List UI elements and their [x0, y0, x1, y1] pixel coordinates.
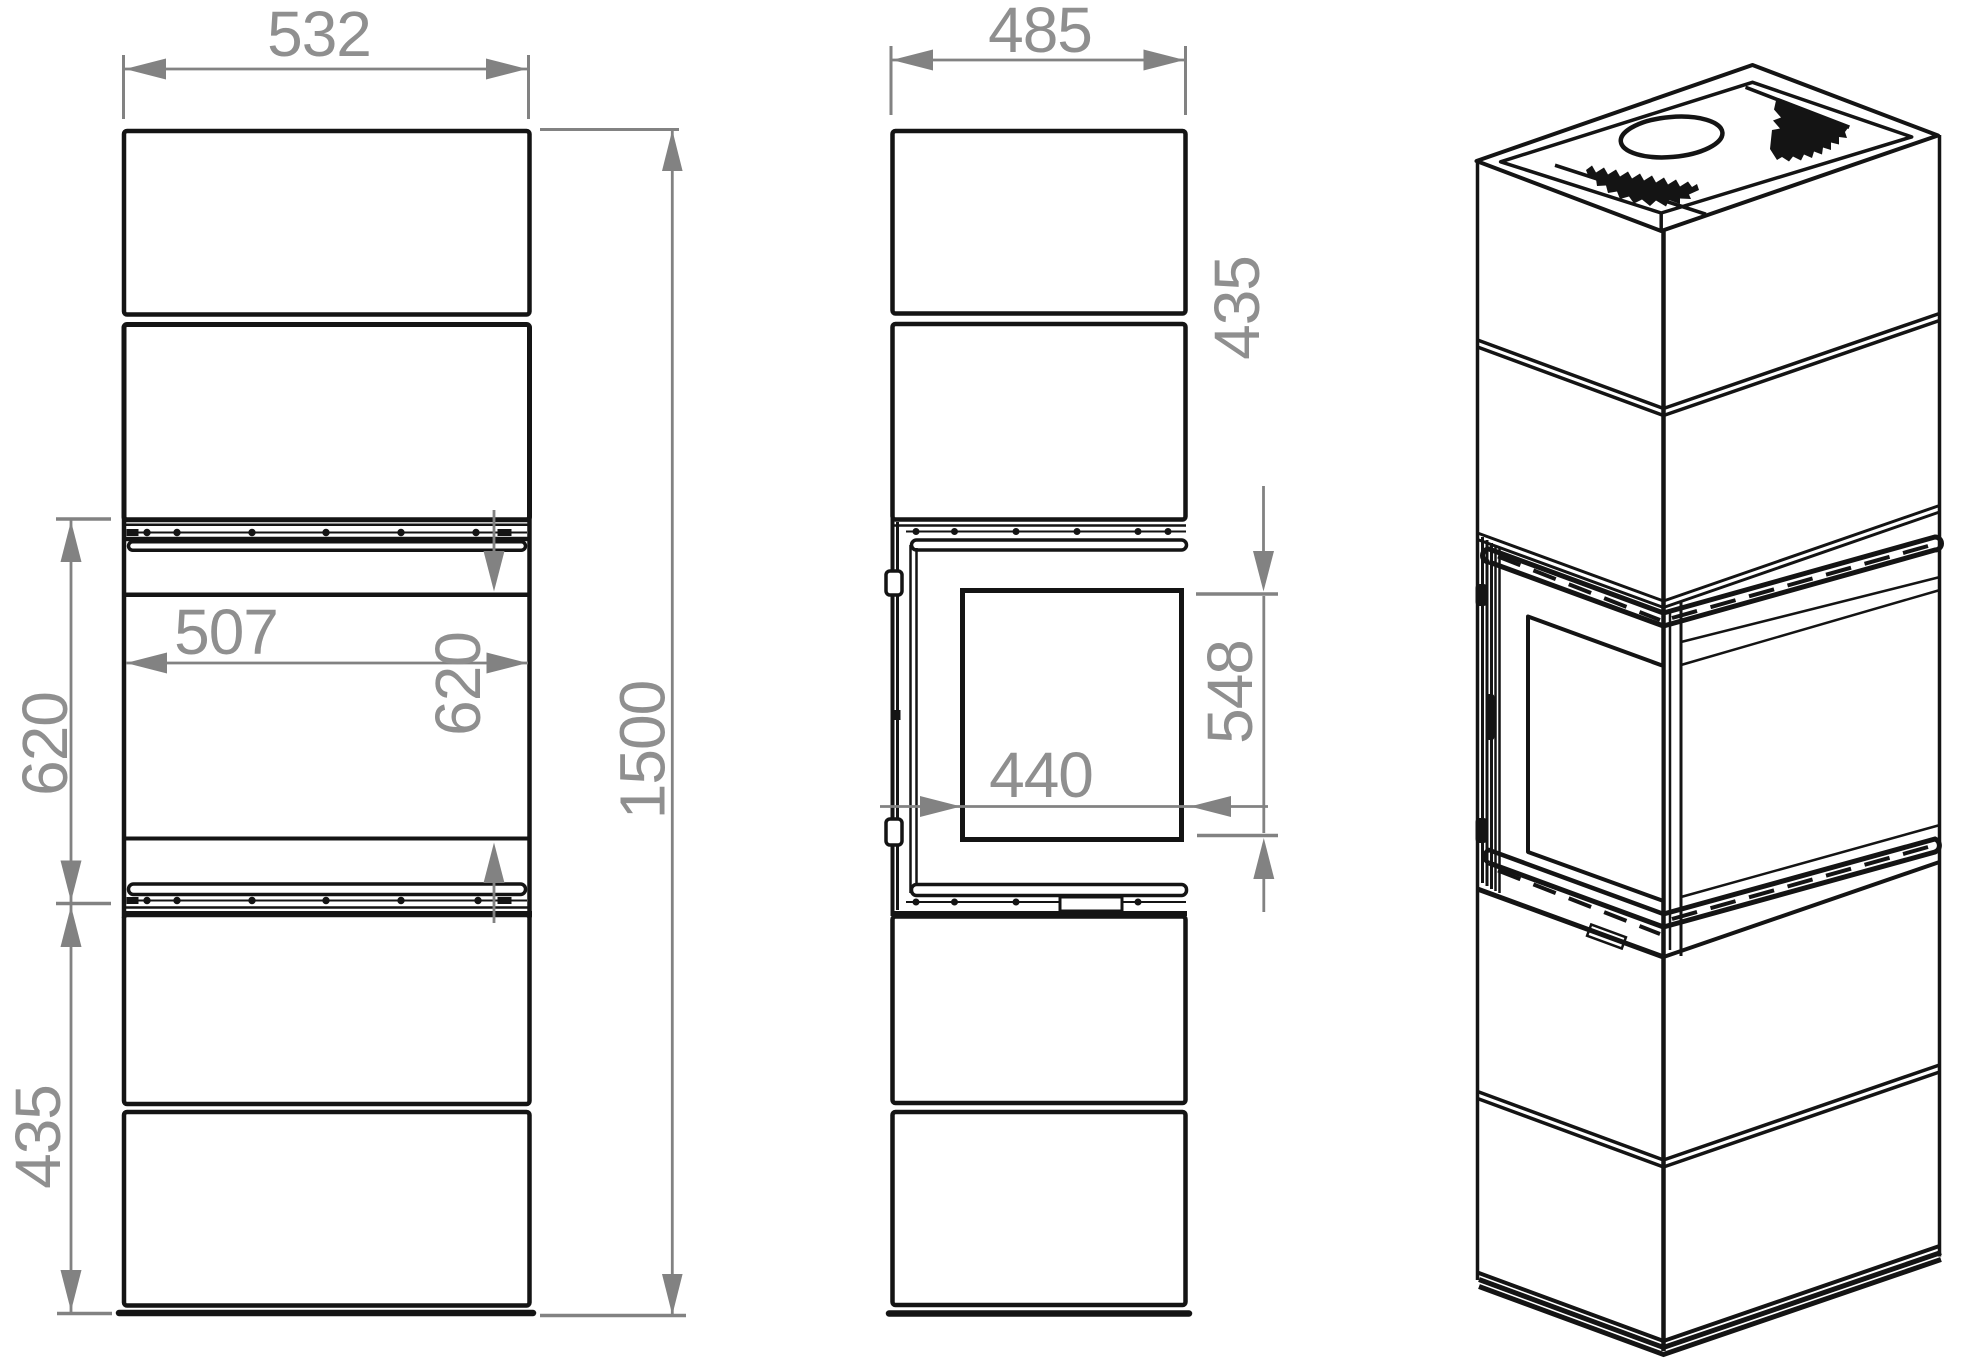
svg-text:1500: 1500 [607, 681, 679, 819]
svg-text:620: 620 [422, 632, 494, 736]
svg-text:620: 620 [9, 692, 81, 796]
svg-text:440: 440 [989, 739, 1093, 811]
svg-text:485: 485 [988, 0, 1092, 66]
svg-text:435: 435 [1201, 256, 1273, 360]
svg-text:532: 532 [267, 0, 371, 70]
svg-text:435: 435 [2, 1085, 74, 1189]
svg-text:548: 548 [1194, 640, 1266, 744]
svg-text:507: 507 [174, 596, 278, 668]
